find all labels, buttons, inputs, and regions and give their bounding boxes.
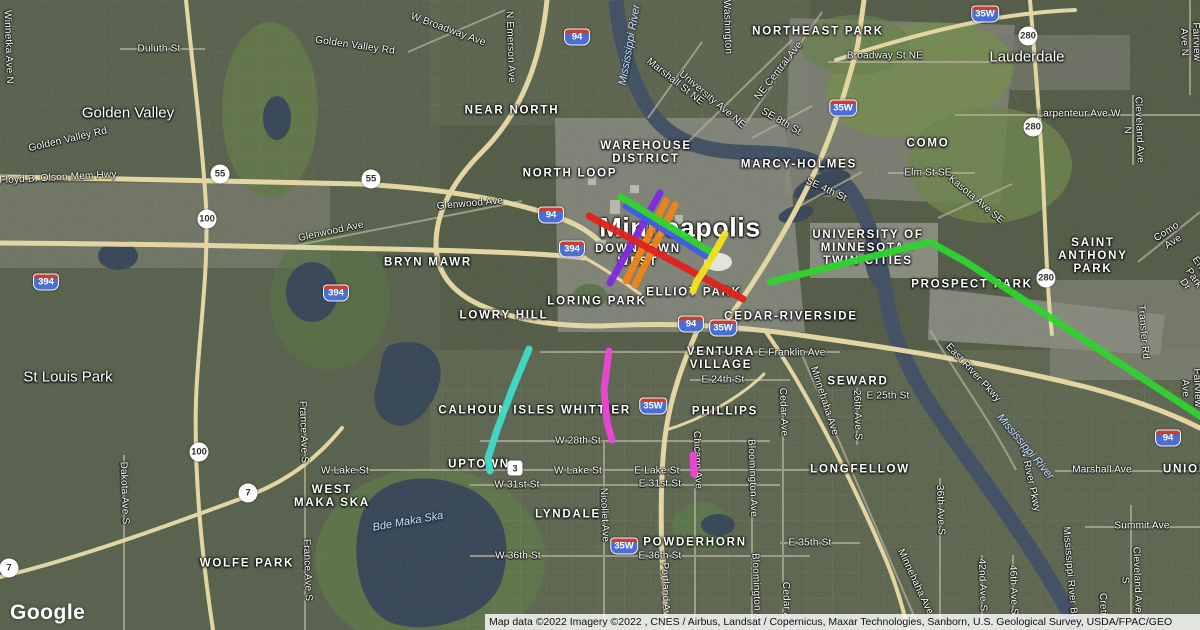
attribution-bar: Map data ©2022 Imagery ©2022 , CNES / Ai… (485, 614, 1200, 630)
google-logo[interactable]: Google (10, 601, 85, 625)
attribution-text: Map data ©2022 Imagery ©2022 , CNES / Ai… (489, 616, 1172, 628)
magenta-line-chicago (693, 455, 694, 474)
map-canvas[interactable]: MinneapolisGolden ValleyLauderdaleSt Lou… (0, 0, 1200, 630)
teal-line (488, 349, 529, 471)
green-line-university (770, 242, 1200, 416)
magenta-line-whittier (604, 351, 612, 440)
transit-lines-overlay (0, 0, 1200, 630)
